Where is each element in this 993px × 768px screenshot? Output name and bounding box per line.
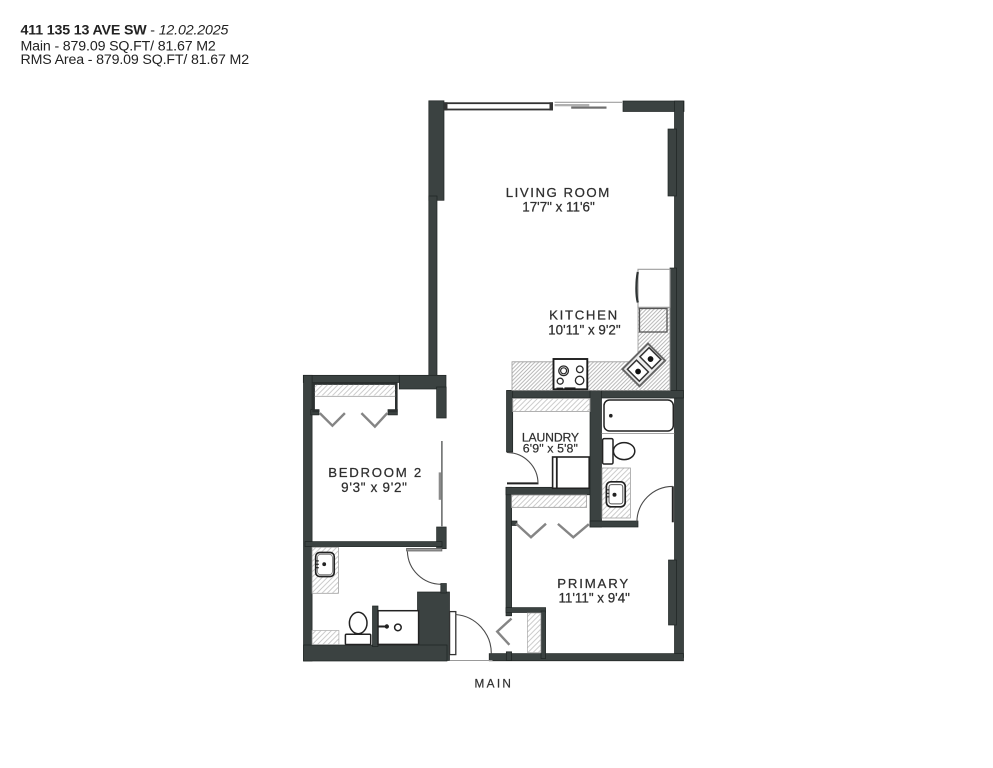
svg-text:BEDROOM 2: BEDROOM 2 bbox=[328, 465, 423, 480]
svg-text:PRIMARY: PRIMARY bbox=[557, 576, 630, 591]
svg-text:KITCHEN: KITCHEN bbox=[549, 307, 619, 322]
svg-text:17'7" x 11'6": 17'7" x 11'6" bbox=[522, 200, 595, 215]
svg-text:11'11" x 9'4": 11'11" x 9'4" bbox=[558, 590, 630, 605]
svg-text:6'9" x 5'8": 6'9" x 5'8" bbox=[523, 441, 578, 455]
svg-text:LIVING ROOM: LIVING ROOM bbox=[506, 185, 611, 200]
svg-text:411 135 13 AVE SW - 12.02.2025: 411 135 13 AVE SW - 12.02.2025 bbox=[21, 23, 229, 39]
svg-text:MAIN: MAIN bbox=[475, 677, 514, 691]
svg-text:9'3" x 9'2": 9'3" x 9'2" bbox=[341, 480, 407, 495]
svg-text:RMS Area - 879.09 SQ.FT/ 81.67: RMS Area - 879.09 SQ.FT/ 81.67 M2 bbox=[21, 52, 250, 68]
svg-text:10'11" x 9'2": 10'11" x 9'2" bbox=[548, 323, 621, 338]
